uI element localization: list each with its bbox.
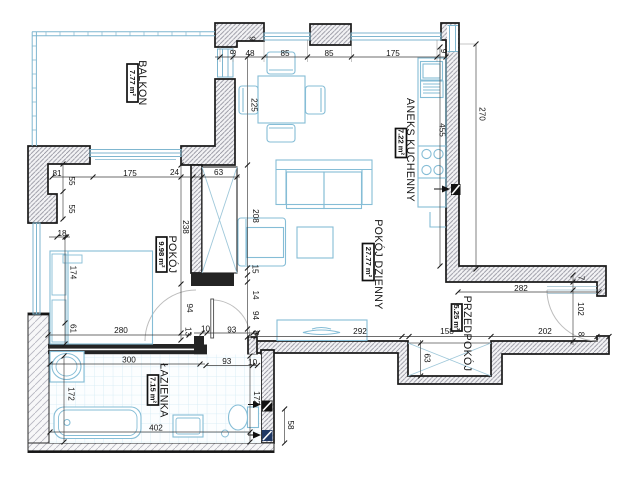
svg-text:225: 225 bbox=[250, 98, 259, 112]
svg-text:94: 94 bbox=[185, 303, 194, 313]
svg-text:270: 270 bbox=[478, 107, 487, 121]
svg-text:9.98 m²: 9.98 m² bbox=[157, 241, 166, 268]
svg-text:10: 10 bbox=[201, 325, 211, 334]
svg-text:172: 172 bbox=[67, 387, 76, 401]
svg-text:61: 61 bbox=[69, 324, 78, 334]
svg-text:280: 280 bbox=[114, 326, 128, 335]
svg-text:55: 55 bbox=[67, 176, 76, 186]
svg-text:PRZEDPOKÓJ: PRZEDPOKÓJ bbox=[461, 296, 474, 372]
svg-text:292: 292 bbox=[353, 327, 367, 336]
svg-text:5.25 m²: 5.25 m² bbox=[452, 304, 461, 331]
svg-text:85: 85 bbox=[280, 49, 290, 58]
svg-text:10: 10 bbox=[248, 358, 258, 367]
svg-text:63: 63 bbox=[423, 353, 432, 363]
svg-text:8: 8 bbox=[228, 50, 237, 55]
svg-text:81: 81 bbox=[52, 169, 62, 178]
svg-text:208: 208 bbox=[251, 209, 260, 223]
svg-text:8: 8 bbox=[251, 330, 260, 335]
svg-text:7: 7 bbox=[577, 276, 586, 281]
svg-text:402: 402 bbox=[149, 424, 163, 433]
svg-text:85: 85 bbox=[324, 49, 334, 58]
svg-text:27.77 m²: 27.77 m² bbox=[364, 247, 373, 278]
svg-text:8: 8 bbox=[577, 332, 586, 337]
svg-text:55: 55 bbox=[67, 204, 76, 214]
svg-text:58: 58 bbox=[286, 420, 295, 430]
svg-text:174: 174 bbox=[69, 266, 78, 280]
svg-text:9: 9 bbox=[439, 49, 448, 54]
svg-text:93: 93 bbox=[227, 326, 237, 335]
svg-text:300: 300 bbox=[122, 356, 136, 365]
svg-text:282: 282 bbox=[514, 284, 528, 293]
svg-text:7.15 m²: 7.15 m² bbox=[149, 377, 158, 404]
svg-text:175: 175 bbox=[123, 169, 137, 178]
svg-text:24: 24 bbox=[170, 168, 180, 177]
svg-text:13: 13 bbox=[184, 327, 193, 337]
svg-text:94: 94 bbox=[251, 311, 260, 321]
svg-text:102: 102 bbox=[576, 302, 585, 316]
svg-text:7.77 m²: 7.77 m² bbox=[128, 70, 137, 97]
svg-text:175: 175 bbox=[386, 49, 400, 58]
svg-text:15: 15 bbox=[251, 264, 260, 274]
svg-text:93: 93 bbox=[222, 357, 232, 366]
svg-text:9: 9 bbox=[248, 36, 257, 41]
svg-text:63: 63 bbox=[214, 168, 224, 177]
svg-text:14: 14 bbox=[251, 290, 260, 300]
svg-text:202: 202 bbox=[538, 327, 552, 336]
svg-text:POKÓJ: POKÓJ bbox=[166, 236, 179, 274]
svg-text:172: 172 bbox=[252, 391, 261, 405]
svg-text:18: 18 bbox=[57, 229, 67, 238]
svg-text:455: 455 bbox=[438, 123, 447, 137]
svg-text:7.22 m²: 7.22 m² bbox=[397, 129, 406, 156]
svg-text:238: 238 bbox=[181, 220, 190, 234]
svg-text:48: 48 bbox=[245, 49, 255, 58]
